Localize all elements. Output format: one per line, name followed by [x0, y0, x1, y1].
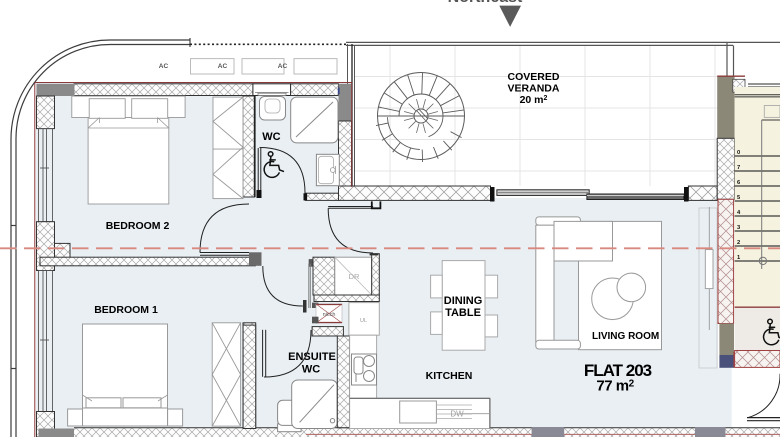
svg-text:Northeast: Northeast — [448, 0, 523, 6]
svg-text:AC: AC — [218, 63, 228, 70]
svg-text:BEDROOM 1: BEDROOM 1 — [94, 304, 158, 316]
svg-text:DINING: DINING — [444, 295, 483, 307]
svg-text:VERANDA: VERANDA — [508, 83, 560, 95]
svg-text:BEDROOM 2: BEDROOM 2 — [106, 220, 170, 232]
svg-text:AC: AC — [159, 63, 169, 70]
svg-text:nicch: nicch — [323, 312, 336, 318]
svg-text:WC: WC — [262, 131, 280, 143]
svg-text:DW: DW — [450, 410, 464, 419]
svg-text:UL: UL — [360, 318, 367, 324]
svg-text:20 m2: 20 m2 — [520, 94, 548, 106]
svg-text:ENSUITE: ENSUITE — [288, 351, 336, 363]
svg-text:7: 7 — [737, 165, 740, 171]
svg-text:COVERED: COVERED — [508, 71, 560, 83]
svg-text:WC: WC — [302, 364, 320, 376]
svg-text:DR: DR — [349, 272, 360, 281]
svg-text:KITCHEN: KITCHEN — [426, 370, 473, 382]
svg-text:2: 2 — [737, 240, 740, 246]
svg-text:AC: AC — [278, 63, 288, 70]
svg-text:LIVING ROOM: LIVING ROOM — [592, 331, 659, 342]
svg-text:0: 0 — [737, 150, 740, 156]
svg-text:TABLE: TABLE — [445, 307, 481, 319]
